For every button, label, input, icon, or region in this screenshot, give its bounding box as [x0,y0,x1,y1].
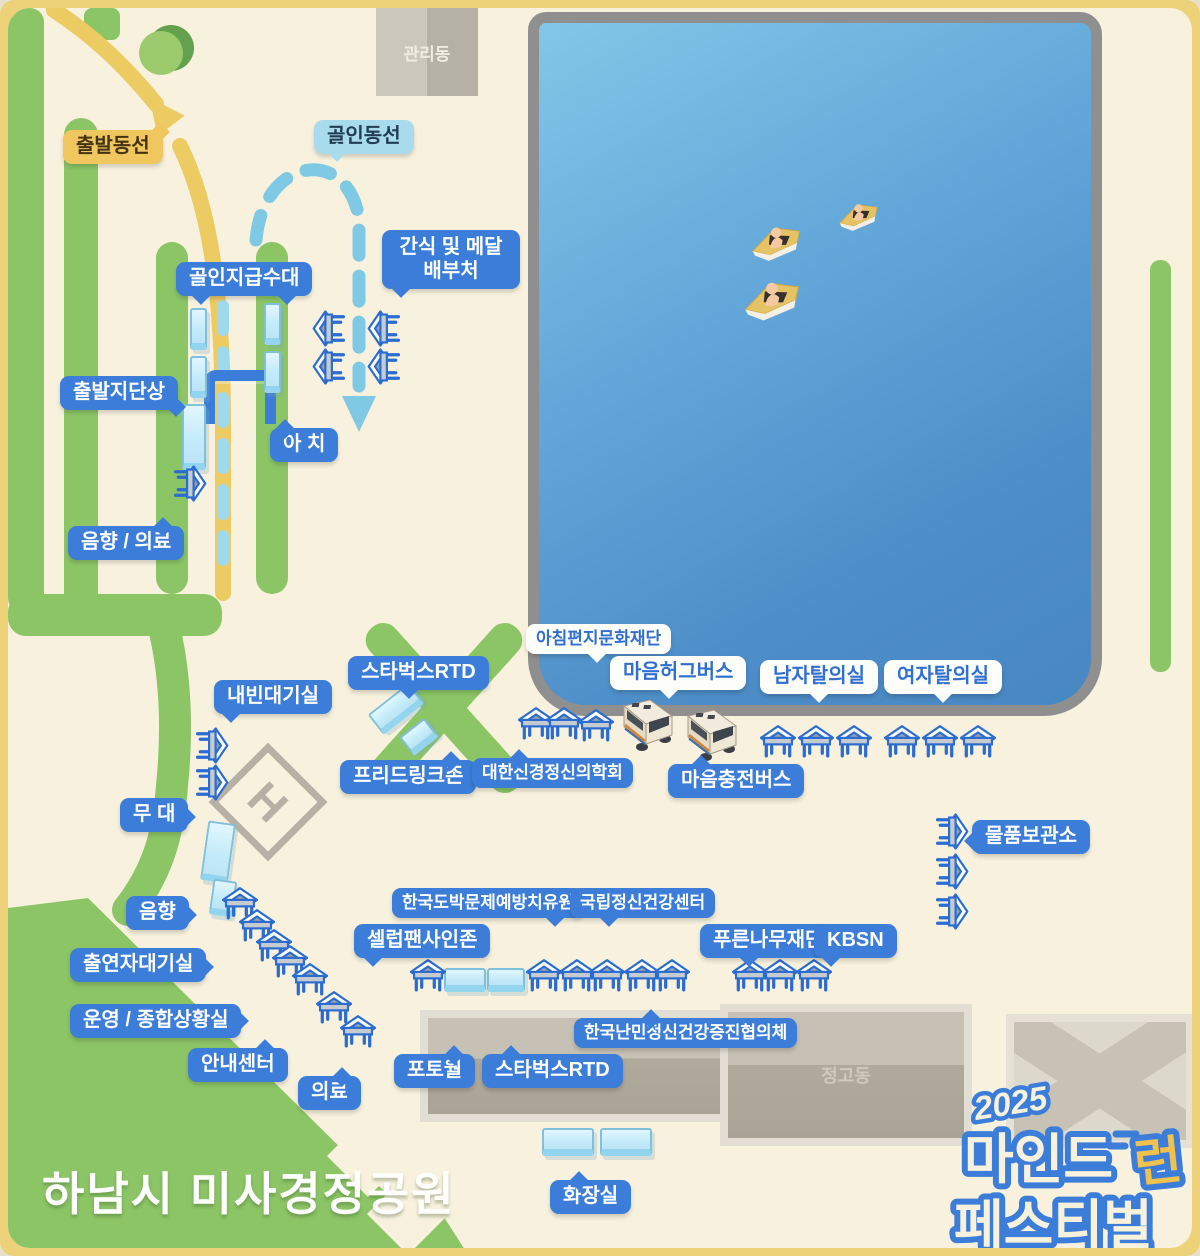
tent-icon [312,349,347,385]
tent-icon [798,724,834,759]
booth-box [542,1128,594,1156]
tent-icon [960,724,996,759]
booth-box [399,718,439,757]
event-logo: 2025 마인드 런 페스티벌 [938,1076,1192,1248]
tent-icon [312,311,347,347]
tent-icon [836,724,872,759]
booth-box [200,820,236,883]
label-hug-bus: 마음허그버스 [610,656,746,690]
label-vip: 내빈대기실 [214,680,332,714]
label-refugee: 한국난민정신건강증진협의체 [574,1018,797,1048]
label-operation: 운영 / 종합상황실 [70,1004,241,1038]
label-free-drink: 프리드링크존 [340,760,476,794]
bus-icon [676,704,748,768]
label-mental-center: 국립정신건강센터 [570,888,715,918]
tent-icon [195,728,230,764]
booth-box [264,303,281,345]
label-kbsn: KBSN [814,924,897,958]
label-morning-letter: 아침편지문화재단 [526,624,671,654]
label-sound-medical: 음향 / 의료 [68,526,184,560]
logo-year: 2025 [970,1079,1050,1127]
booth-box [182,404,206,470]
label-finish-water: 골인지급수대 [176,262,312,296]
festival-map: 관리동 정고동 H [0,0,1200,1256]
booth-box [600,1128,652,1156]
tent-icon [589,958,625,993]
label-starbucks-bottom: 스타벅스RTD [482,1054,623,1088]
tent-icon [546,706,582,741]
boat-icon [834,196,885,235]
tent-icon [935,854,970,890]
tent-icon [367,311,402,347]
tent-icon [526,958,562,993]
label-arch: 아 치 [270,428,338,462]
map-ground: 관리동 정고동 H [8,8,1192,1248]
label-women-changing: 여자탈의실 [884,660,1002,694]
tent-icon [884,724,920,759]
booth-box [190,308,207,350]
tent-icon [195,765,230,801]
tent-icon [760,724,796,759]
label-charge-bus: 마음충전버스 [668,764,804,798]
booth-box [487,968,525,992]
tent-icon [340,1014,376,1049]
tent-icon [173,466,208,502]
tent-icon [654,958,690,993]
boat-icon [746,217,810,265]
park-name: 하남시 미사경정공원 [42,1158,456,1224]
label-start-route: 출발동선 [63,130,163,164]
label-snack: 간식 및 메달 배부처 [382,230,520,289]
label-start-stage: 출발지단상 [60,376,178,410]
label-men-changing: 남자탈의실 [760,660,878,694]
label-stage: 무 대 [120,798,188,832]
label-storage: 물품보관소 [972,820,1090,854]
tent-icon [578,708,614,743]
label-medical: 의료 [298,1076,361,1110]
booth-box [190,356,207,398]
booth-box [264,351,281,393]
label-neuro: 대한신경정신의학회 [472,758,633,788]
tent-icon [935,814,970,850]
tent-icon [762,958,798,993]
tent-icon [922,724,958,759]
logo-word3: 페스티벌 [954,1196,1153,1248]
logo-word1: 마인드 [964,1130,1113,1190]
booth-box [444,968,486,992]
label-finish-route: 골인동선 [314,120,414,154]
tent-icon [410,958,446,993]
bus-icon [612,694,684,758]
label-celeb: 셀럽팬사인존 [354,924,490,958]
label-photo-wall: 포토월 [394,1054,475,1088]
label-performer: 출연자대기실 [70,948,206,982]
boat-icon [738,271,811,326]
tent-icon [367,349,402,385]
label-sound: 음향 [126,896,189,930]
label-starbucks-top: 스타벅스RTD [348,656,489,690]
label-gambling: 한국도박문제예방치유원 [392,888,584,918]
label-toilet: 화장실 [550,1180,631,1214]
logo-word2: 런 [1131,1131,1185,1194]
label-info: 안내센터 [188,1048,288,1082]
tent-icon [935,894,970,930]
